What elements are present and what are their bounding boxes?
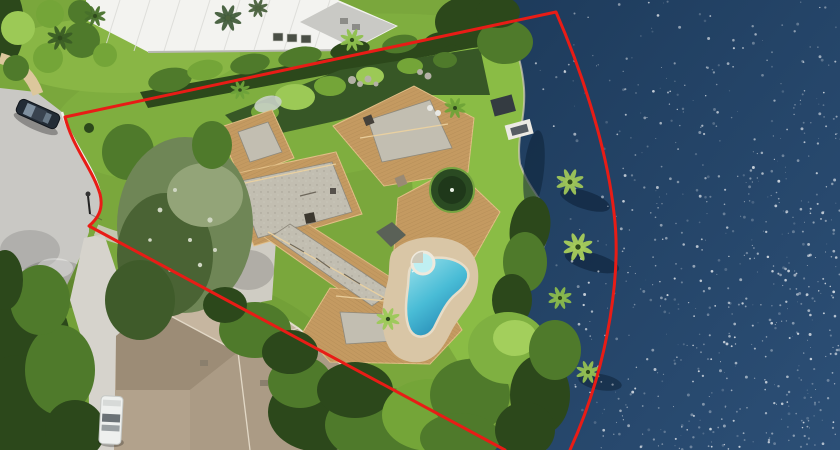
spa	[412, 252, 434, 274]
aerial-photo-canvas	[0, 0, 840, 450]
garden-pond	[430, 168, 474, 212]
aerial-photo	[0, 0, 840, 450]
